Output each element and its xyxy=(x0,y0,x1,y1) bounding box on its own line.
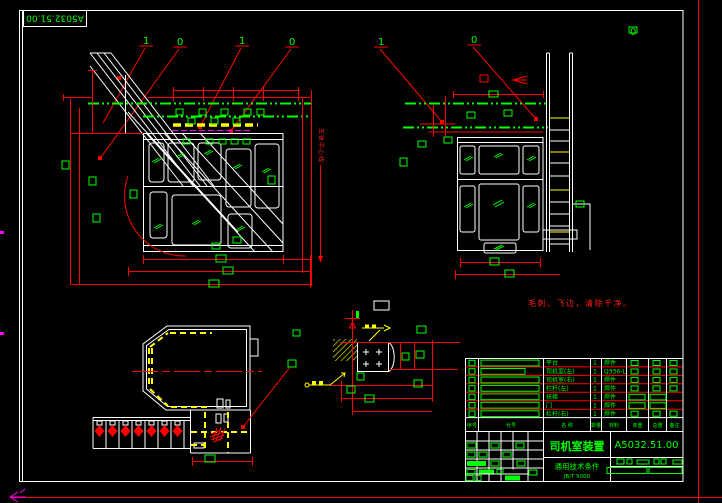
bom-qty: 1 xyxy=(593,394,597,401)
balloon-label: 0 xyxy=(177,37,183,48)
surface-note: 毛刺、飞边，清除干净。 xyxy=(528,298,633,308)
bom-header: 数量 xyxy=(591,422,601,429)
bom-name: 扶梯 xyxy=(546,393,558,401)
bom-remark: 焊件 xyxy=(604,376,616,384)
balloon-label: 0 xyxy=(289,37,295,48)
bom-qty: 1 xyxy=(593,385,597,392)
balloon-label: 1 xyxy=(378,37,384,48)
bom-remark: Q336-L xyxy=(604,369,626,376)
balloon-label: 1 xyxy=(143,36,149,47)
bom-name: 平台 xyxy=(546,359,558,367)
corner-drawing-no: A5032.51.00 xyxy=(26,13,84,23)
cad-drawing-canvas: A5032.51.00 1 0 1 0 1 0 0 xyxy=(0,0,722,503)
bom-remark: 焊件 xyxy=(604,393,616,401)
bom-remark: 焊件 xyxy=(604,401,616,409)
drawing-title: 司机室装置 xyxy=(550,439,605,453)
bom-header: 序号 xyxy=(467,422,477,429)
bom-remark: 焊件 xyxy=(604,359,616,367)
bom-header: 材料 xyxy=(609,422,619,429)
edge-tick-1 xyxy=(0,231,4,234)
detail-balloon-bar xyxy=(356,311,359,319)
balloon-label: 1 xyxy=(239,36,245,47)
bom-qty: 1 xyxy=(593,369,597,376)
bom-header: 单重 xyxy=(632,422,642,429)
bom-remark: 焊件 xyxy=(604,384,616,392)
bom-header: 备注 xyxy=(669,422,679,429)
centerline-label: 车体中心线 xyxy=(317,128,325,163)
bom-qty: 1 xyxy=(593,360,597,367)
bom-name: 门 xyxy=(546,401,552,409)
bom-name: 司机室(右) xyxy=(546,376,575,384)
balloon-label: 0 xyxy=(471,35,477,46)
bom-header: 代号 xyxy=(506,422,516,429)
spec-code: JB/T 5000 xyxy=(563,474,591,480)
bom-remark: 焊件 xyxy=(604,410,616,418)
bom-qty: 1 xyxy=(593,411,597,418)
spec-title: 通用技术条件 xyxy=(555,461,600,471)
bom-name: 栏杆(左) xyxy=(546,384,569,392)
bom-qty: 1 xyxy=(593,377,597,384)
bom-header: 名 称 xyxy=(561,422,573,429)
bom-qty: 1 xyxy=(593,402,597,409)
bom-header: 总重 xyxy=(652,422,662,429)
edge-tick-2 xyxy=(0,332,4,335)
bom-name: 栏杆(右) xyxy=(546,410,569,418)
bom-name: 司机室(左) xyxy=(546,368,575,376)
cad-drawing: A5032.51.00 1 0 1 0 1 0 0 xyxy=(0,0,722,503)
drawing-number: A5032.51.00 xyxy=(614,440,678,451)
